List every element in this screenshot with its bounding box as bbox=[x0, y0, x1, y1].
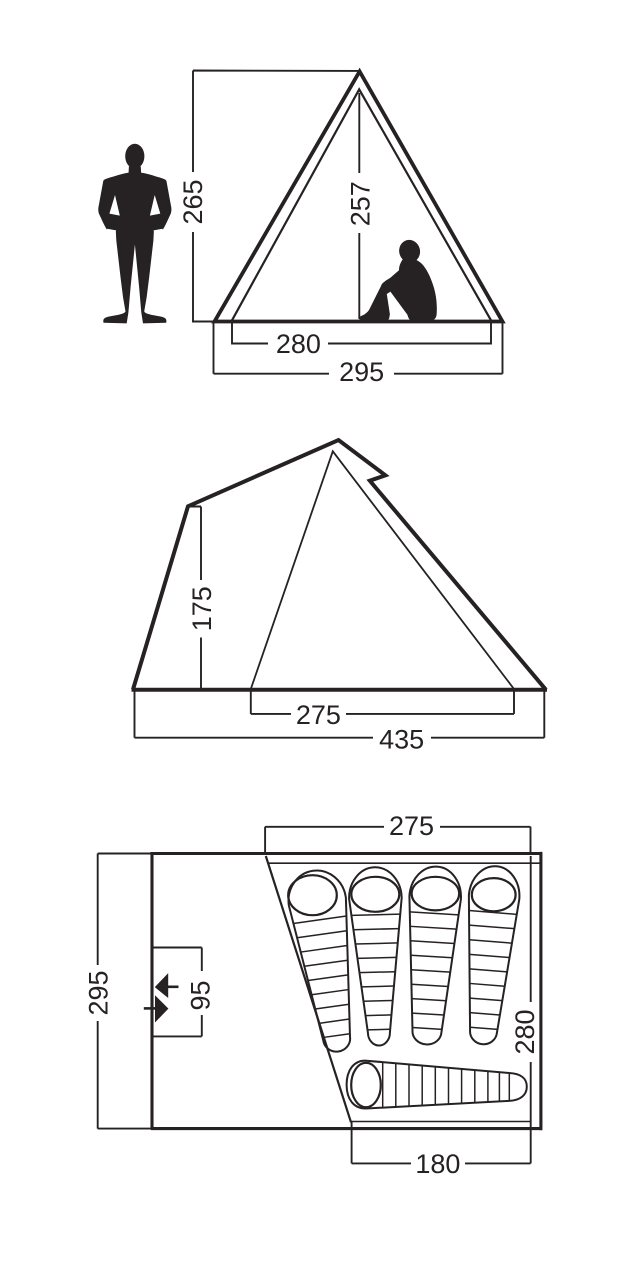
svg-text:295: 295 bbox=[84, 970, 114, 1015]
svg-text:280: 280 bbox=[510, 1009, 540, 1054]
svg-text:275: 275 bbox=[296, 700, 341, 730]
svg-text:180: 180 bbox=[415, 1149, 460, 1179]
svg-text:275: 275 bbox=[389, 811, 434, 841]
svg-text:265: 265 bbox=[178, 179, 208, 224]
svg-text:95: 95 bbox=[186, 980, 216, 1010]
svg-text:435: 435 bbox=[379, 725, 424, 755]
svg-text:175: 175 bbox=[187, 586, 217, 631]
svg-text:295: 295 bbox=[339, 357, 384, 387]
svg-text:280: 280 bbox=[276, 329, 321, 359]
svg-text:257: 257 bbox=[345, 181, 375, 226]
